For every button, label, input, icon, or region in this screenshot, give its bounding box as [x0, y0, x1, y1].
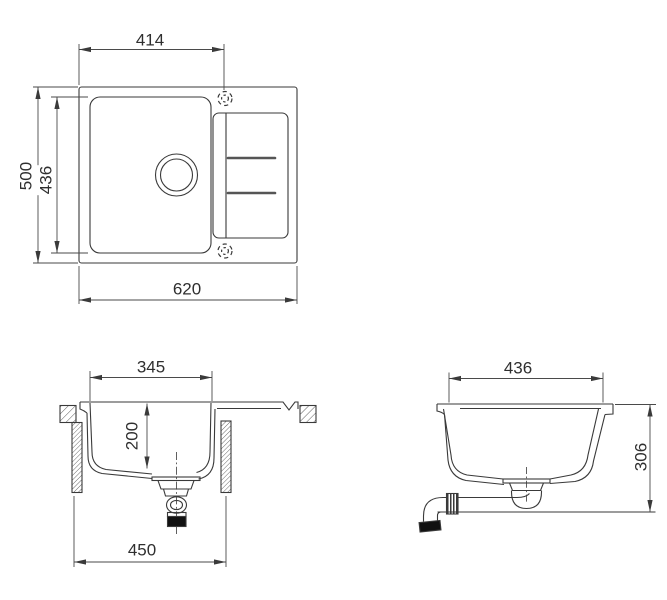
sink-profile-side	[437, 404, 613, 485]
dim-label-450: 450	[127, 542, 157, 559]
drawing-canvas	[0, 0, 667, 600]
dim-label-306: 306	[633, 442, 650, 472]
drain-assembly-front	[152, 452, 200, 534]
dim-label-200: 200	[124, 421, 141, 451]
tap-hole-bottom	[218, 244, 232, 258]
dim-label-345: 345	[136, 359, 166, 376]
drainboard	[213, 113, 288, 238]
dim-label-620: 620	[172, 281, 202, 298]
trap-elbow-outer	[424, 498, 447, 522]
tap-hole-top	[218, 92, 232, 106]
dimension-436-top	[51, 97, 88, 253]
dimension-414	[79, 44, 224, 90]
dim-label-414: 414	[135, 32, 165, 49]
dimensions-side-section	[449, 373, 656, 513]
dim-label-436-side: 436	[503, 360, 533, 377]
pipe-end-cap	[419, 520, 441, 532]
drain-trap-side	[419, 467, 655, 532]
cabinet-panel-left	[72, 423, 82, 493]
countertop-hatch-right	[300, 406, 316, 423]
sink-profile-front	[80, 402, 298, 479]
drain-outlet-cap	[168, 517, 187, 527]
countertop-hatch-left	[60, 406, 76, 423]
front-section-view	[60, 371, 316, 567]
dim-label-436-top: 436	[38, 165, 55, 195]
side-section-view	[419, 373, 656, 533]
trap-pipe-top	[458, 494, 530, 498]
dim-label-500: 500	[18, 161, 35, 191]
top-view	[33, 44, 297, 304]
cabinet-panel-right	[221, 421, 231, 493]
sink-technical-drawing: 414 500 436 620 345 200 450 436 306	[0, 0, 667, 600]
pipe-coupling	[447, 494, 459, 515]
